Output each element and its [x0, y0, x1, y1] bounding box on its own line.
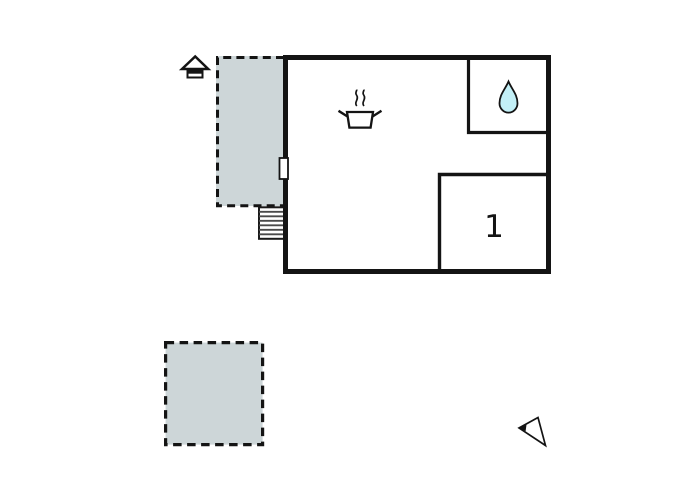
north-compass-icon: [519, 418, 546, 446]
compass-needle-outline: [519, 418, 546, 446]
floor-plan: 1: [0, 0, 700, 500]
entrance-door: [280, 158, 289, 179]
pot-body: [347, 112, 373, 128]
floor-plan-drawing: 1: [0, 0, 700, 500]
entrance-house-icon: [182, 57, 208, 78]
terrace-lower: [166, 343, 263, 445]
stairs: [259, 207, 284, 239]
house-roof: [182, 57, 208, 70]
terrace-upper-fill: [216, 56, 284, 206]
room-1-label: 1: [484, 209, 504, 245]
